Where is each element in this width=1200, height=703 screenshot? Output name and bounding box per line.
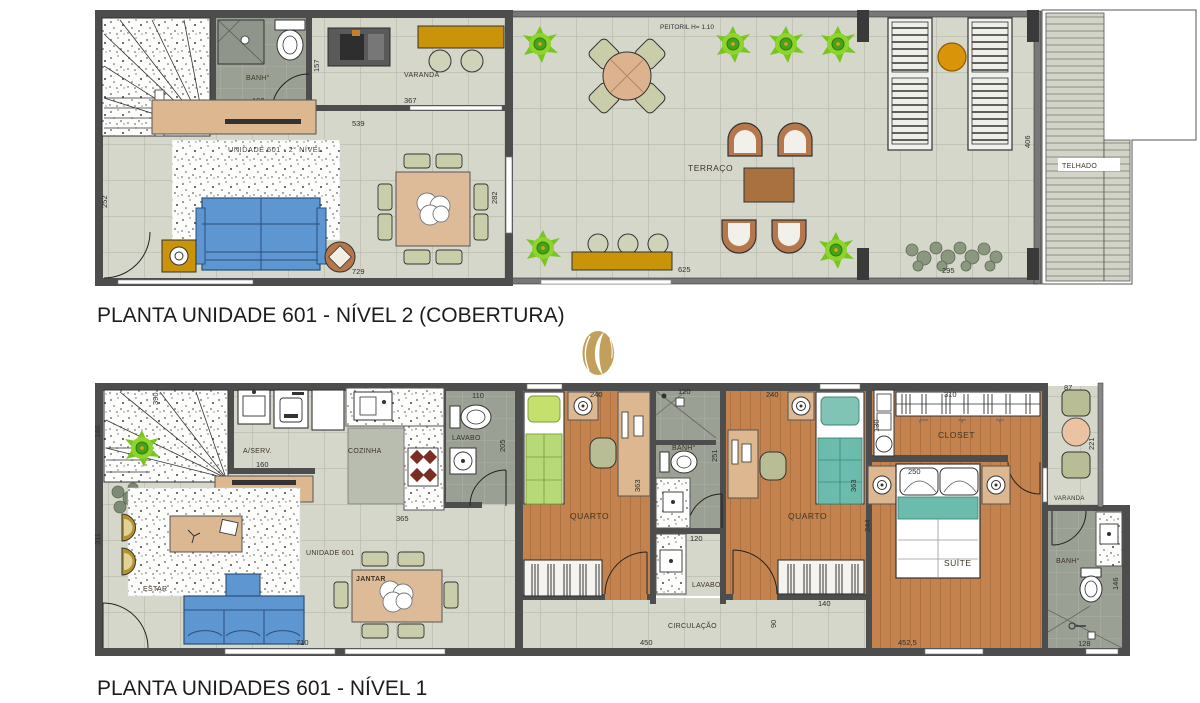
chair: [444, 582, 458, 608]
vanity: [656, 478, 690, 528]
dim-label: 252: [100, 195, 109, 208]
dim-label: 244: [863, 519, 872, 532]
wardrobe: [778, 560, 864, 594]
chair: [1062, 452, 1090, 478]
chair: [378, 184, 392, 210]
dim-label: 452,5: [898, 638, 917, 647]
grill: [328, 28, 390, 66]
centerpiece: [417, 193, 450, 225]
dim-label: 367: [404, 96, 417, 105]
armchair: [722, 220, 756, 253]
chair: [474, 184, 488, 210]
umbrella-table: [938, 43, 966, 71]
washing-machine: [274, 390, 308, 428]
wardrobe: [524, 560, 602, 596]
quarto2-label: QUARTO: [788, 511, 827, 521]
plan-lower: 390 146 A/SERV. 160: [93, 383, 1130, 700]
dim-label: 406: [1023, 135, 1032, 148]
dim-label: 90: [769, 620, 778, 628]
lavabo1-label: LAVABO: [452, 435, 481, 442]
closet-label: CLOSET: [938, 430, 975, 440]
cooktop: [408, 448, 438, 486]
chair: [436, 250, 462, 264]
toilet: [1080, 568, 1102, 602]
bar-counter: [418, 26, 504, 48]
estar-label: ESTAR: [143, 586, 167, 593]
sink: [450, 448, 476, 474]
dim-label: 240: [766, 390, 779, 399]
dim-label: 160: [256, 460, 269, 469]
plan-upper-title: PLANTA UNIDADE 601 - NÍVEL 2 (COBERTURA): [97, 304, 565, 327]
dim-label: 221: [1087, 437, 1096, 450]
living-window: [118, 280, 253, 284]
toilet: [660, 451, 697, 473]
dim-label: 295: [942, 266, 955, 275]
toilet: [450, 405, 491, 429]
cabinet: [348, 428, 404, 504]
telhado-roof: TELHADO: [1042, 10, 1196, 284]
dim-label: 363: [849, 479, 858, 492]
pillar: [1027, 10, 1039, 42]
dim-label: 140: [818, 599, 831, 608]
gold-swirl-logo: [582, 331, 614, 375]
vanity: [1096, 512, 1122, 566]
dim-label: 240: [590, 390, 603, 399]
chair: [436, 154, 462, 168]
terraco-wall-top: [508, 11, 1038, 17]
hanging-rail: [896, 392, 1040, 416]
armchair: [778, 123, 812, 156]
lamp-table: [162, 240, 196, 272]
single-bed-green: [524, 392, 564, 504]
varanda-window: [410, 106, 502, 110]
dim-label: 282: [490, 191, 499, 204]
terraco-wall-right: [1034, 11, 1041, 284]
desk: [170, 516, 242, 552]
chair: [362, 552, 388, 566]
dim-label: 146: [1111, 577, 1120, 590]
banh-upper: BANH° 160 157: [216, 18, 321, 111]
dim-label: 128: [1078, 639, 1091, 648]
table-lamp: [574, 397, 592, 415]
table-lamp: [873, 476, 891, 494]
table-lamp: [987, 476, 1005, 494]
circulacao-label: CIRCULAÇÃO: [668, 621, 717, 630]
dim-label: 205: [498, 439, 507, 452]
terraco-label: TERRAÇO: [688, 163, 733, 173]
quarto1-label: QUARTO: [570, 511, 609, 521]
laundry-sink: [238, 390, 270, 424]
sideboard: [152, 100, 316, 134]
banh-upper-label: BANH°: [246, 74, 270, 82]
unit-upper-label: UNIDADE 601 - 2° NÍVEL: [228, 145, 323, 154]
centerpiece: [380, 581, 413, 612]
pillar: [857, 248, 869, 280]
round-table: [1062, 418, 1090, 446]
dim-label: 250: [908, 467, 921, 476]
telhado-label: TELHADO: [1062, 163, 1097, 170]
dim-label: 157: [312, 59, 321, 72]
peitoril-note: PEITORIL H= 1.10: [660, 24, 714, 31]
sofa: [196, 198, 326, 270]
chair: [404, 250, 430, 264]
side-table: [325, 242, 355, 272]
dim-label: 710: [296, 638, 309, 647]
unit-lower-label: UNIDADE 601: [306, 550, 354, 557]
suite-label: SUÍTE: [944, 558, 972, 568]
dim-label: 625: [678, 265, 691, 274]
stool: [461, 50, 483, 72]
chair: [378, 214, 392, 240]
pillar: [1027, 248, 1039, 280]
chair: [334, 582, 348, 608]
dim-label: 365: [396, 514, 409, 523]
pillar: [857, 10, 869, 42]
varanda-upper-label: VARANDA: [404, 72, 439, 79]
plan-lower-title: PLANTA UNIDADES 601 - NÍVEL 1: [97, 677, 427, 700]
dim-label: 146: [93, 425, 102, 438]
armchair: [728, 123, 762, 156]
chair: [474, 214, 488, 240]
sun-lounger: [888, 18, 932, 150]
table-lamp: [792, 397, 810, 415]
dim-label: 110: [472, 391, 484, 400]
plan-upper: TELHADO BA: [95, 10, 1196, 327]
chair: [1062, 390, 1090, 416]
chair: [404, 154, 430, 168]
floorplan-drawing: TELHADO BA: [0, 0, 1200, 703]
terraco-sliding-door: [506, 157, 512, 233]
coffee-table: [744, 168, 794, 202]
armchair: [772, 220, 806, 253]
dim-label: 539: [352, 119, 365, 128]
chair: [398, 624, 424, 638]
terraco-window: [541, 280, 671, 284]
desk-chair: [760, 452, 786, 480]
desk-chair: [590, 438, 616, 468]
varanda2-rail: [1098, 383, 1103, 507]
dim-label: 390: [151, 392, 160, 405]
dim-label: 120: [678, 387, 691, 396]
toilet: [275, 20, 305, 60]
floorplan-sheet: TELHADO BA: [0, 0, 1200, 703]
dim-label: 363: [633, 479, 642, 492]
dim-label: 311: [93, 533, 102, 545]
dim-label: 87: [1064, 383, 1072, 392]
stairs-lower: 390 146: [93, 390, 228, 482]
fridge: [312, 390, 344, 430]
dim-label: 450: [640, 638, 653, 647]
banh2-label: BANH°: [1056, 557, 1080, 565]
dim-label: 130: [872, 419, 881, 432]
dim-label: 729: [352, 267, 365, 276]
sun-lounger: [968, 18, 1012, 150]
chair: [398, 552, 424, 566]
chair: [362, 624, 388, 638]
varanda2-label: VARANDA: [1054, 496, 1085, 502]
dim-label: 120: [690, 534, 703, 543]
aserv-label: A/SERV.: [243, 448, 272, 455]
kitchen-sink: [354, 392, 392, 420]
lavabo2-label: LAVABO: [692, 582, 721, 589]
cozinha-label: COZINHA: [348, 448, 382, 455]
dim-label: 251: [710, 449, 719, 462]
stool: [429, 50, 451, 72]
jantar-label: JANTAR: [356, 576, 386, 583]
dim-label: 310: [944, 390, 957, 399]
